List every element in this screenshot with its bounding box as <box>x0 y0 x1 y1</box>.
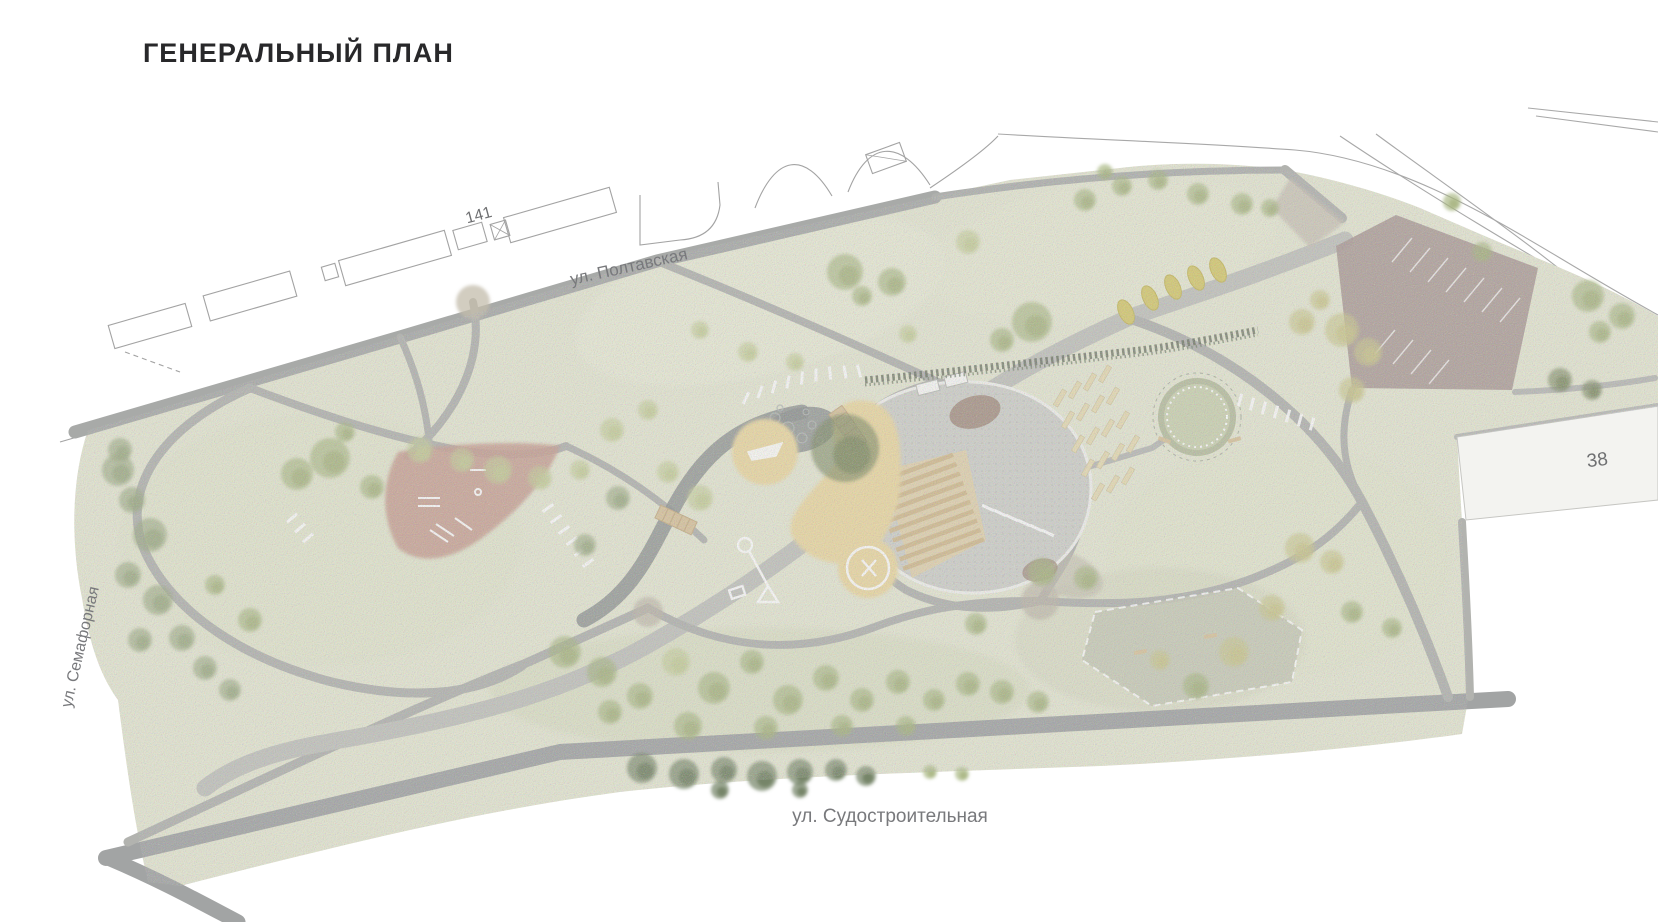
building-number-38: 38 <box>1586 449 1610 472</box>
page-title: ГЕНЕРАЛЬНЫЙ ПЛАН <box>143 38 454 69</box>
building-number-141: 141 <box>464 204 494 227</box>
masterplan-drawing: ул. Полтавская ул. Семафорная ул. Судост… <box>0 0 1658 922</box>
street-label-sudostroitelnaya: ул. Судостроительная <box>792 806 988 827</box>
masterplan-canvas: ГЕНЕРАЛЬНЫЙ ПЛАН <box>0 0 1658 922</box>
